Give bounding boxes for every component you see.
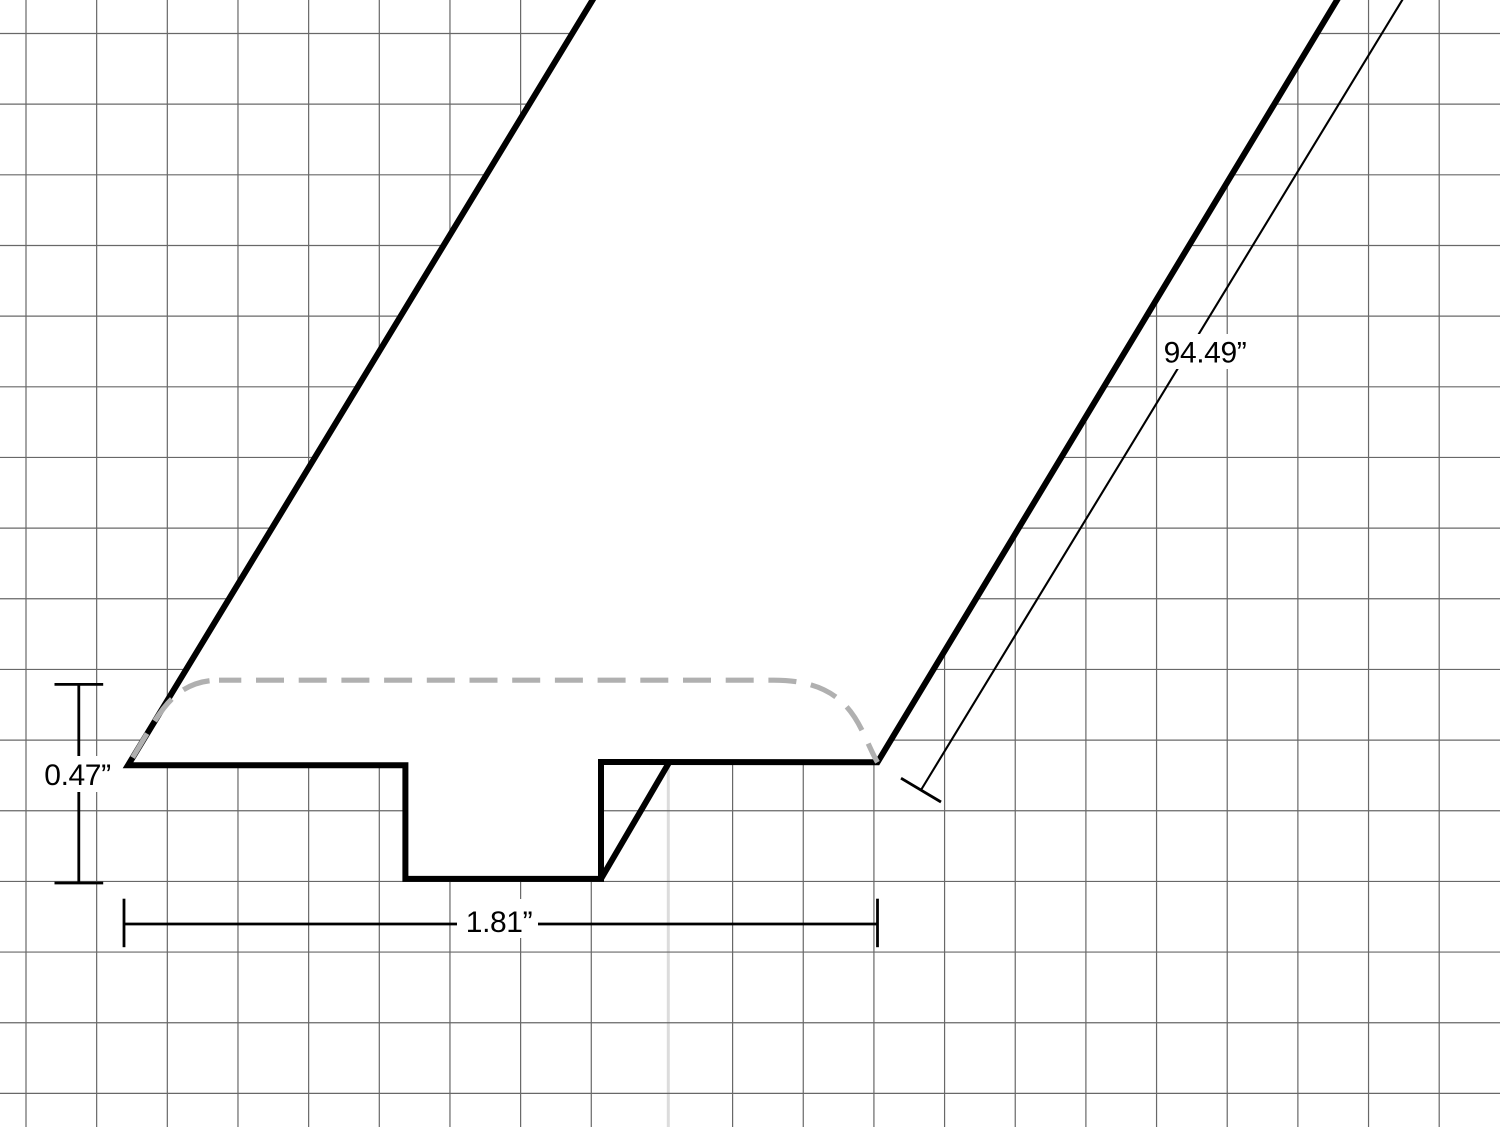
svg-text:0.47”: 0.47” [44,759,110,792]
svg-text:1.81”: 1.81” [466,906,532,939]
svg-text:94.49”: 94.49” [1164,337,1247,370]
